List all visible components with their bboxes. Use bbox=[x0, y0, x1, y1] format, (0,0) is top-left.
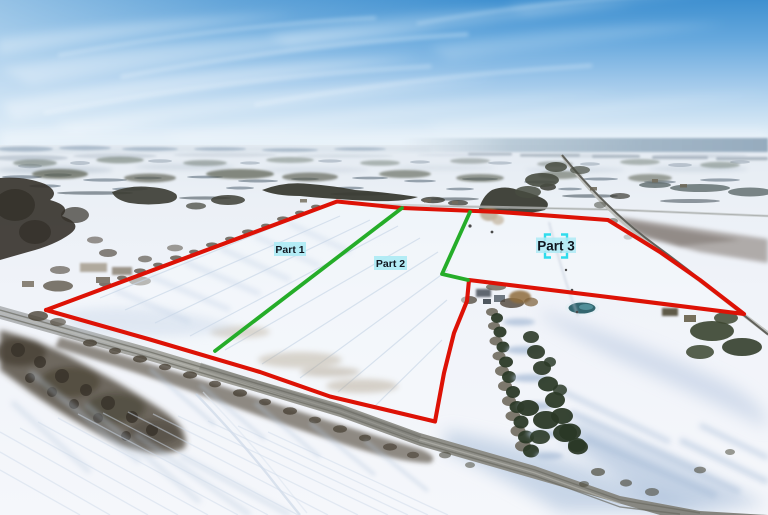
svg-text:Part 3: Part 3 bbox=[537, 239, 575, 254]
svg-text:Part 2: Part 2 bbox=[376, 258, 405, 270]
svg-text:Part 1: Part 1 bbox=[275, 244, 304, 256]
